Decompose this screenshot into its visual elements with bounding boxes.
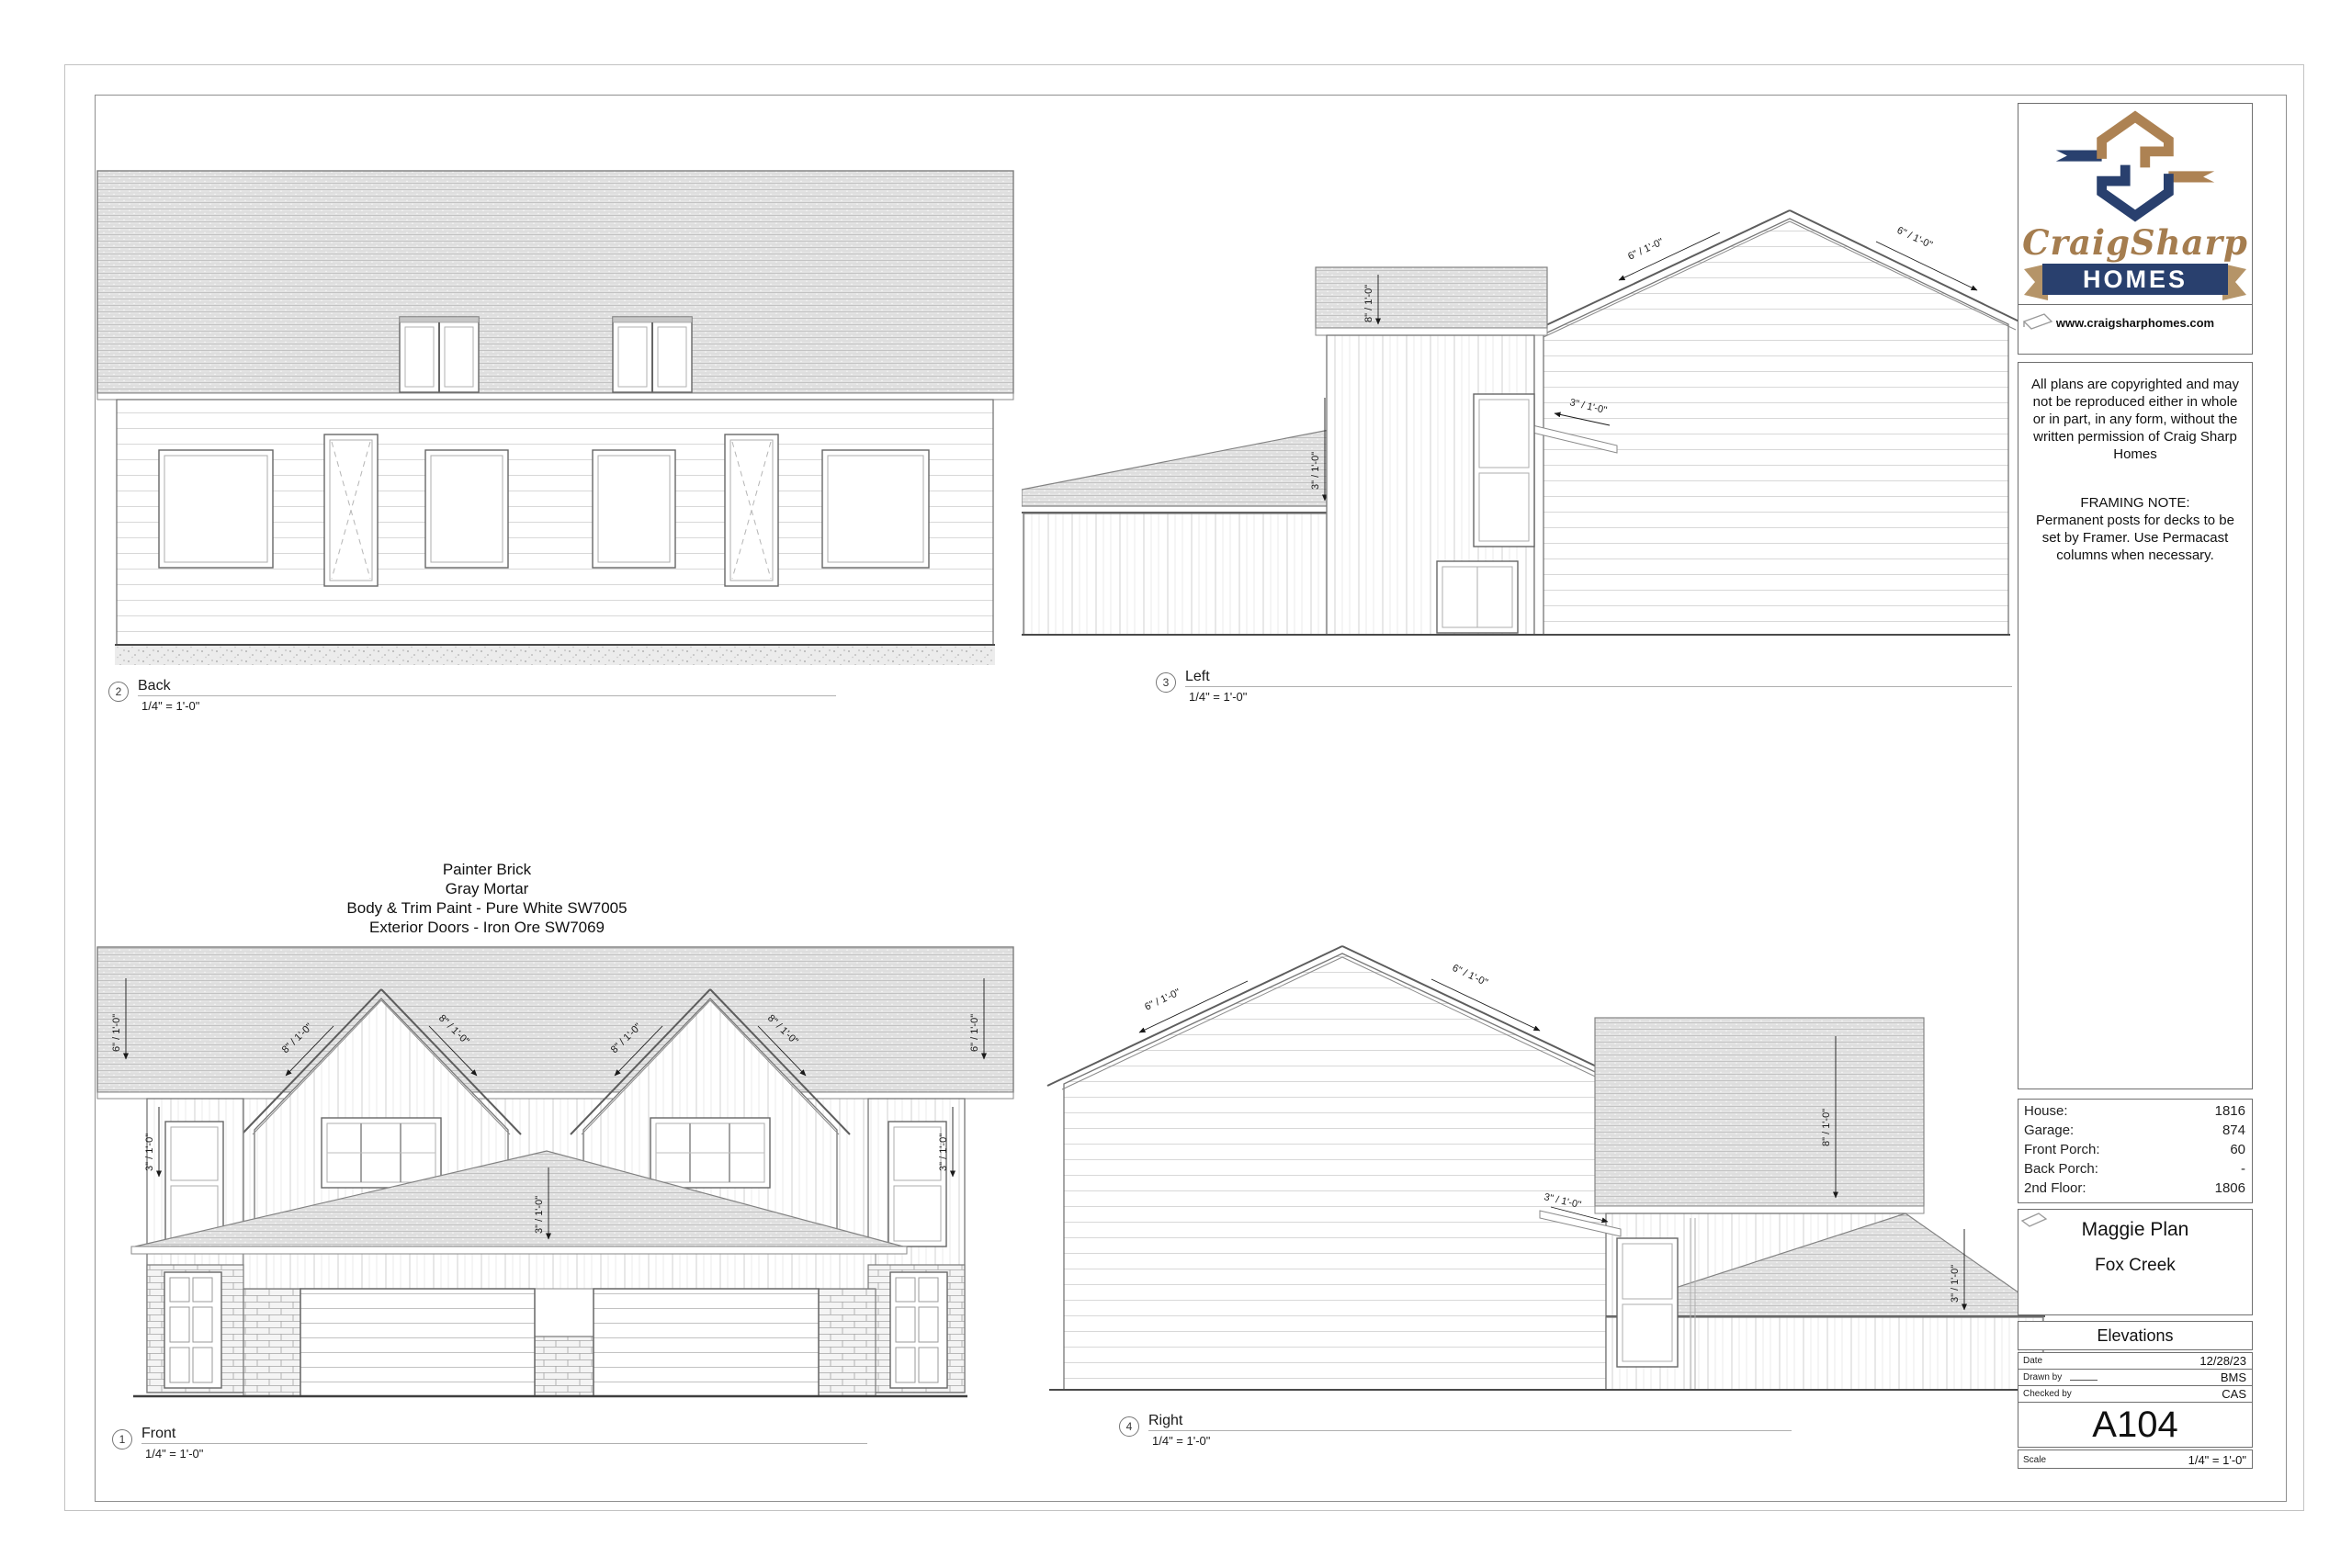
back-elevation-label: 2 Back 1/4" = 1'-0" [108, 678, 862, 718]
stat-label: Back Porch: [2024, 1161, 2098, 1177]
front-gable-left-window [322, 1118, 441, 1188]
front-gable-right-window [650, 1118, 770, 1188]
stat-label: 2nd Floor: [2024, 1180, 2086, 1196]
drawn-by-label: Drawn by [2023, 1372, 2062, 1382]
subdivision-name: Fox Creek [2018, 1256, 2252, 1276]
sheet-title-box: Elevations [2018, 1321, 2253, 1350]
drawn-by-row: Drawn by BMS [2018, 1369, 2253, 1386]
notes-box: All plans are copyrighted and may not be… [2018, 362, 2253, 1089]
left-gable-wall [1543, 219, 2008, 635]
finish-note-line: Exterior Doors - Iron Ore SW7069 [230, 918, 744, 937]
back-door-1 [324, 434, 378, 586]
sheet-number-box: A104 [2018, 1402, 2253, 1448]
date-label: Date [2023, 1356, 2042, 1366]
finish-notes: Painter Brick Gray Mortar Body & Trim Pa… [230, 860, 744, 937]
area-stats-box: House: 1816 Garage: 874 Front Porch: 60 … [2018, 1099, 2253, 1203]
drawn-by-rule [2070, 1380, 2098, 1381]
view-number-badge: 3 [1156, 672, 1176, 693]
logo-box: CraigSharp HOMES www.craigsharphomes.com [2018, 103, 2253, 355]
view-name: Left [1185, 669, 1210, 685]
right-gable-wall [1064, 953, 1621, 1390]
front-right-entry [868, 1265, 965, 1393]
framing-note-body: Permanent posts for decks to be set by F… [2026, 512, 2245, 564]
date-row: Date 12/28/23 [2018, 1352, 2253, 1370]
view-number-badge: 2 [108, 682, 129, 702]
framing-note-title: FRAMING NOTE: [2026, 494, 2245, 512]
label-rule [1148, 1430, 1792, 1431]
checked-by-label: Checked by [2023, 1389, 2072, 1399]
stat-row: 2nd Floor: 1806 [2018, 1180, 2252, 1200]
svg-text:6" / 1'-0": 6" / 1'-0" [1451, 963, 1489, 988]
svg-text:8" / 1'-0": 8" / 1'-0" [1363, 285, 1374, 322]
right-tower-window [1617, 1238, 1678, 1367]
website-row: www.craigsharphomes.com [2018, 304, 2252, 342]
back-door-2 [725, 434, 778, 586]
copyright-note: All plans are copyrighted and may not be… [2018, 363, 2252, 463]
stat-row: Back Porch: - [2018, 1161, 2252, 1180]
finish-note-line: Painter Brick [230, 860, 744, 879]
front-garage-door-right [594, 1289, 819, 1396]
left-first-floor-window [1437, 561, 1518, 633]
checked-by-row: Checked by CAS [2018, 1385, 2253, 1403]
view-name: Back [138, 678, 171, 694]
right-elevation-label: 4 Right 1/4" = 1'-0" [1119, 1413, 1817, 1453]
svg-text:6" / 1'-0": 6" / 1'-0" [1143, 987, 1182, 1012]
checked-by-value: CAS [2222, 1387, 2246, 1401]
website-text: www.craigsharphomes.com [2018, 305, 2252, 342]
svg-text:6" / 1'-0": 6" / 1'-0" [969, 1014, 980, 1052]
finish-note-line: Gray Mortar [230, 879, 744, 898]
svg-text:6" / 1'-0": 6" / 1'-0" [111, 1014, 122, 1052]
plan-name-box: Maggie Plan Fox Creek [2018, 1209, 2253, 1315]
svg-text:6" / 1'-0": 6" / 1'-0" [1895, 225, 1934, 251]
front-left-entry [147, 1265, 243, 1393]
label-rule [1185, 686, 2012, 687]
svg-text:3" / 1'-0": 3" / 1'-0" [938, 1134, 949, 1171]
craig-sharp-monogram-icon [2018, 107, 2252, 225]
view-name: Right [1148, 1413, 1182, 1429]
logo-script-text: CraigSharp [2018, 225, 2252, 260]
stat-row: Garage: 874 [2018, 1122, 2252, 1142]
stat-label: House: [2024, 1103, 2068, 1119]
date-value: 12/28/23 [2199, 1354, 2246, 1368]
view-name: Front [141, 1426, 175, 1442]
stat-value: - [2241, 1161, 2245, 1177]
view-scale: 1/4" = 1'-0" [1152, 1434, 1210, 1448]
stat-row: House: 1816 [2018, 1103, 2252, 1122]
label-rule [138, 695, 836, 696]
logo-homes-text: HOMES [2042, 264, 2228, 295]
back-lower-window-1 [159, 450, 273, 568]
svg-text:3" / 1'-0": 3" / 1'-0" [144, 1134, 155, 1171]
stat-label: Front Porch: [2024, 1142, 2100, 1157]
stat-value: 60 [2230, 1142, 2245, 1157]
view-scale: 1/4" = 1'-0" [1189, 690, 1247, 704]
back-lower-window-4 [822, 450, 929, 568]
svg-text:3" / 1'-0": 3" / 1'-0" [1310, 452, 1321, 490]
back-roof [97, 171, 1013, 400]
view-number-badge: 1 [112, 1429, 132, 1450]
right-elevation-drawing: 6" / 1'-0" 6" / 1'-0" 8" / 1'-0" 3" / 1'… [1036, 926, 2047, 1405]
back-lower-window-2 [425, 450, 508, 568]
view-scale: 1/4" = 1'-0" [145, 1447, 203, 1461]
logo-banner: HOMES [2018, 262, 2252, 299]
back-ground [115, 645, 995, 665]
front-main-roof [97, 947, 1013, 1099]
scale-row: Scale 1/4" = 1'-0" [2018, 1450, 2253, 1469]
framing-note: FRAMING NOTE: Permanent posts for decks … [2018, 463, 2252, 564]
stat-value: 1816 [2215, 1103, 2245, 1119]
stat-row: Front Porch: 60 [2018, 1142, 2252, 1161]
view-number-badge: 4 [1119, 1416, 1139, 1437]
roof-sketch-icon [2020, 1212, 2048, 1230]
drawn-by-value: BMS [2221, 1371, 2246, 1384]
front-elevation-drawing: 6" / 1'-0" 6" / 1'-0" 8" / 1'-0" 8" / 1'… [96, 942, 1015, 1403]
svg-text:3" / 1'-0": 3" / 1'-0" [1950, 1265, 1961, 1303]
plan-name: Maggie Plan [2018, 1219, 2252, 1241]
left-tower-window [1474, 394, 1534, 547]
back-upper-window-1 [400, 317, 479, 392]
front-garage-door-left [300, 1289, 535, 1396]
scale-label: Scale [2023, 1455, 2046, 1465]
left-tower-roof [1316, 267, 1547, 335]
scale-value: 1/4" = 1'-0" [2188, 1453, 2246, 1467]
back-elevation-drawing [96, 164, 1015, 667]
stat-value: 874 [2222, 1122, 2245, 1138]
svg-text:8" / 1'-0": 8" / 1'-0" [1821, 1109, 1832, 1146]
finish-note-line: Body & Trim Paint - Pure White SW7005 [230, 898, 744, 918]
back-upper-window-2 [613, 317, 692, 392]
roof-sketch-icon [2022, 312, 2053, 336]
left-elevation-label: 3 Left 1/4" = 1'-0" [1156, 669, 2038, 709]
front-elevation-label: 1 Front 1/4" = 1'-0" [112, 1426, 902, 1466]
svg-text:6" / 1'-0": 6" / 1'-0" [1626, 236, 1665, 262]
right-tower-roof [1595, 1018, 1924, 1213]
stat-label: Garage: [2024, 1122, 2074, 1138]
left-elevation-drawing: 6" / 1'-0" 6" / 1'-0" 3" / 1'-0" 8" / 1'… [1022, 122, 2037, 666]
label-rule [141, 1443, 867, 1444]
stat-value: 1806 [2215, 1180, 2245, 1196]
svg-text:3" / 1'-0": 3" / 1'-0" [534, 1196, 545, 1234]
view-scale: 1/4" = 1'-0" [141, 699, 199, 713]
sheet-title: Elevations [2018, 1322, 2252, 1349]
back-lower-window-3 [593, 450, 675, 568]
sheet-number: A104 [2018, 1403, 2252, 1447]
front-garage-header [243, 1254, 876, 1289]
